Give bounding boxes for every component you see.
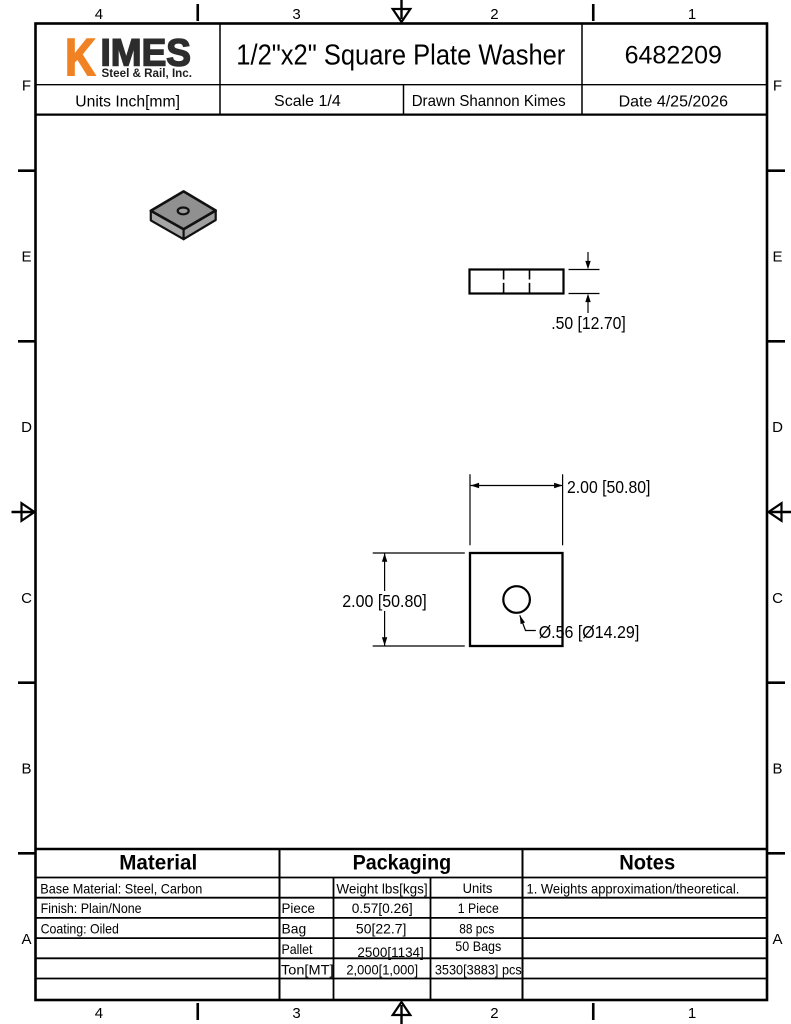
- svg-text:Drawn Shannon Kimes: Drawn Shannon Kimes: [412, 93, 566, 110]
- svg-text:C: C: [772, 590, 783, 607]
- svg-text:Ton[MT]: Ton[MT]: [281, 962, 334, 977]
- svg-text:3: 3: [292, 1005, 300, 1022]
- svg-text:F: F: [773, 78, 782, 95]
- svg-text:K: K: [65, 27, 95, 86]
- svg-text:Ø.56 [Ø14.29]: Ø.56 [Ø14.29]: [539, 622, 640, 642]
- svg-text:Base Material: Steel, Carbon: Base Material: Steel, Carbon: [40, 882, 202, 897]
- svg-text:.50 [12.70]: .50 [12.70]: [551, 313, 626, 333]
- svg-text:1. Weights approximation/theor: 1. Weights approximation/theoretical.: [527, 881, 740, 896]
- svg-text:4: 4: [95, 1005, 103, 1022]
- svg-text:Coating: Oiled: Coating: Oiled: [41, 922, 119, 937]
- svg-text:B: B: [772, 761, 782, 778]
- svg-text:A: A: [21, 931, 31, 948]
- svg-text:2.00 [50.80]: 2.00 [50.80]: [342, 591, 426, 611]
- svg-text:0.57[0.26]: 0.57[0.26]: [352, 901, 413, 916]
- svg-text:2.00 [50.80]: 2.00 [50.80]: [567, 477, 650, 497]
- svg-text:88 pcs: 88 pcs: [459, 921, 494, 936]
- svg-text:Steel & Rail, Inc.: Steel & Rail, Inc.: [102, 66, 193, 80]
- svg-text:3: 3: [292, 6, 300, 23]
- svg-text:Notes: Notes: [619, 851, 675, 874]
- svg-text:C: C: [21, 590, 32, 607]
- svg-text:Material: Material: [119, 851, 197, 874]
- svg-text:E: E: [21, 248, 31, 265]
- svg-text:Units: Units: [463, 881, 493, 896]
- svg-text:E: E: [772, 248, 782, 265]
- svg-text:Finish: Plain/None: Finish: Plain/None: [41, 901, 142, 916]
- svg-text:2,000[1,000]: 2,000[1,000]: [346, 962, 418, 977]
- svg-text:50 Bags: 50 Bags: [455, 939, 501, 954]
- svg-text:D: D: [772, 419, 783, 436]
- svg-text:1: 1: [688, 6, 696, 23]
- svg-text:Bag: Bag: [282, 921, 307, 936]
- svg-text:Piece: Piece: [282, 901, 316, 916]
- svg-text:6482209: 6482209: [625, 41, 722, 69]
- svg-text:2: 2: [490, 6, 498, 23]
- svg-text:4: 4: [95, 6, 103, 23]
- svg-text:3530[3883] pcs: 3530[3883] pcs: [435, 962, 522, 977]
- svg-text:Pallet: Pallet: [282, 942, 313, 957]
- svg-text:Scale 1/4: Scale 1/4: [274, 93, 341, 110]
- svg-text:1 Piece: 1 Piece: [458, 901, 499, 916]
- svg-text:B: B: [21, 761, 31, 778]
- svg-text:Packaging: Packaging: [353, 851, 452, 874]
- svg-text:1/2"x2" Square Plate Washer: 1/2"x2" Square Plate Washer: [236, 39, 565, 71]
- svg-text:2500[1134]: 2500[1134]: [357, 945, 423, 960]
- svg-text:A: A: [772, 931, 782, 948]
- svg-text:D: D: [21, 419, 32, 436]
- svg-text:2: 2: [490, 1005, 498, 1022]
- svg-text:1: 1: [688, 1005, 696, 1022]
- svg-text:Units Inch[mm]: Units Inch[mm]: [75, 93, 180, 110]
- svg-text:50[22.7]: 50[22.7]: [356, 921, 407, 936]
- svg-text:Weight lbs[kgs]: Weight lbs[kgs]: [336, 881, 427, 896]
- svg-text:F: F: [22, 78, 31, 95]
- svg-text:Date 4/25/2026: Date 4/25/2026: [619, 93, 729, 110]
